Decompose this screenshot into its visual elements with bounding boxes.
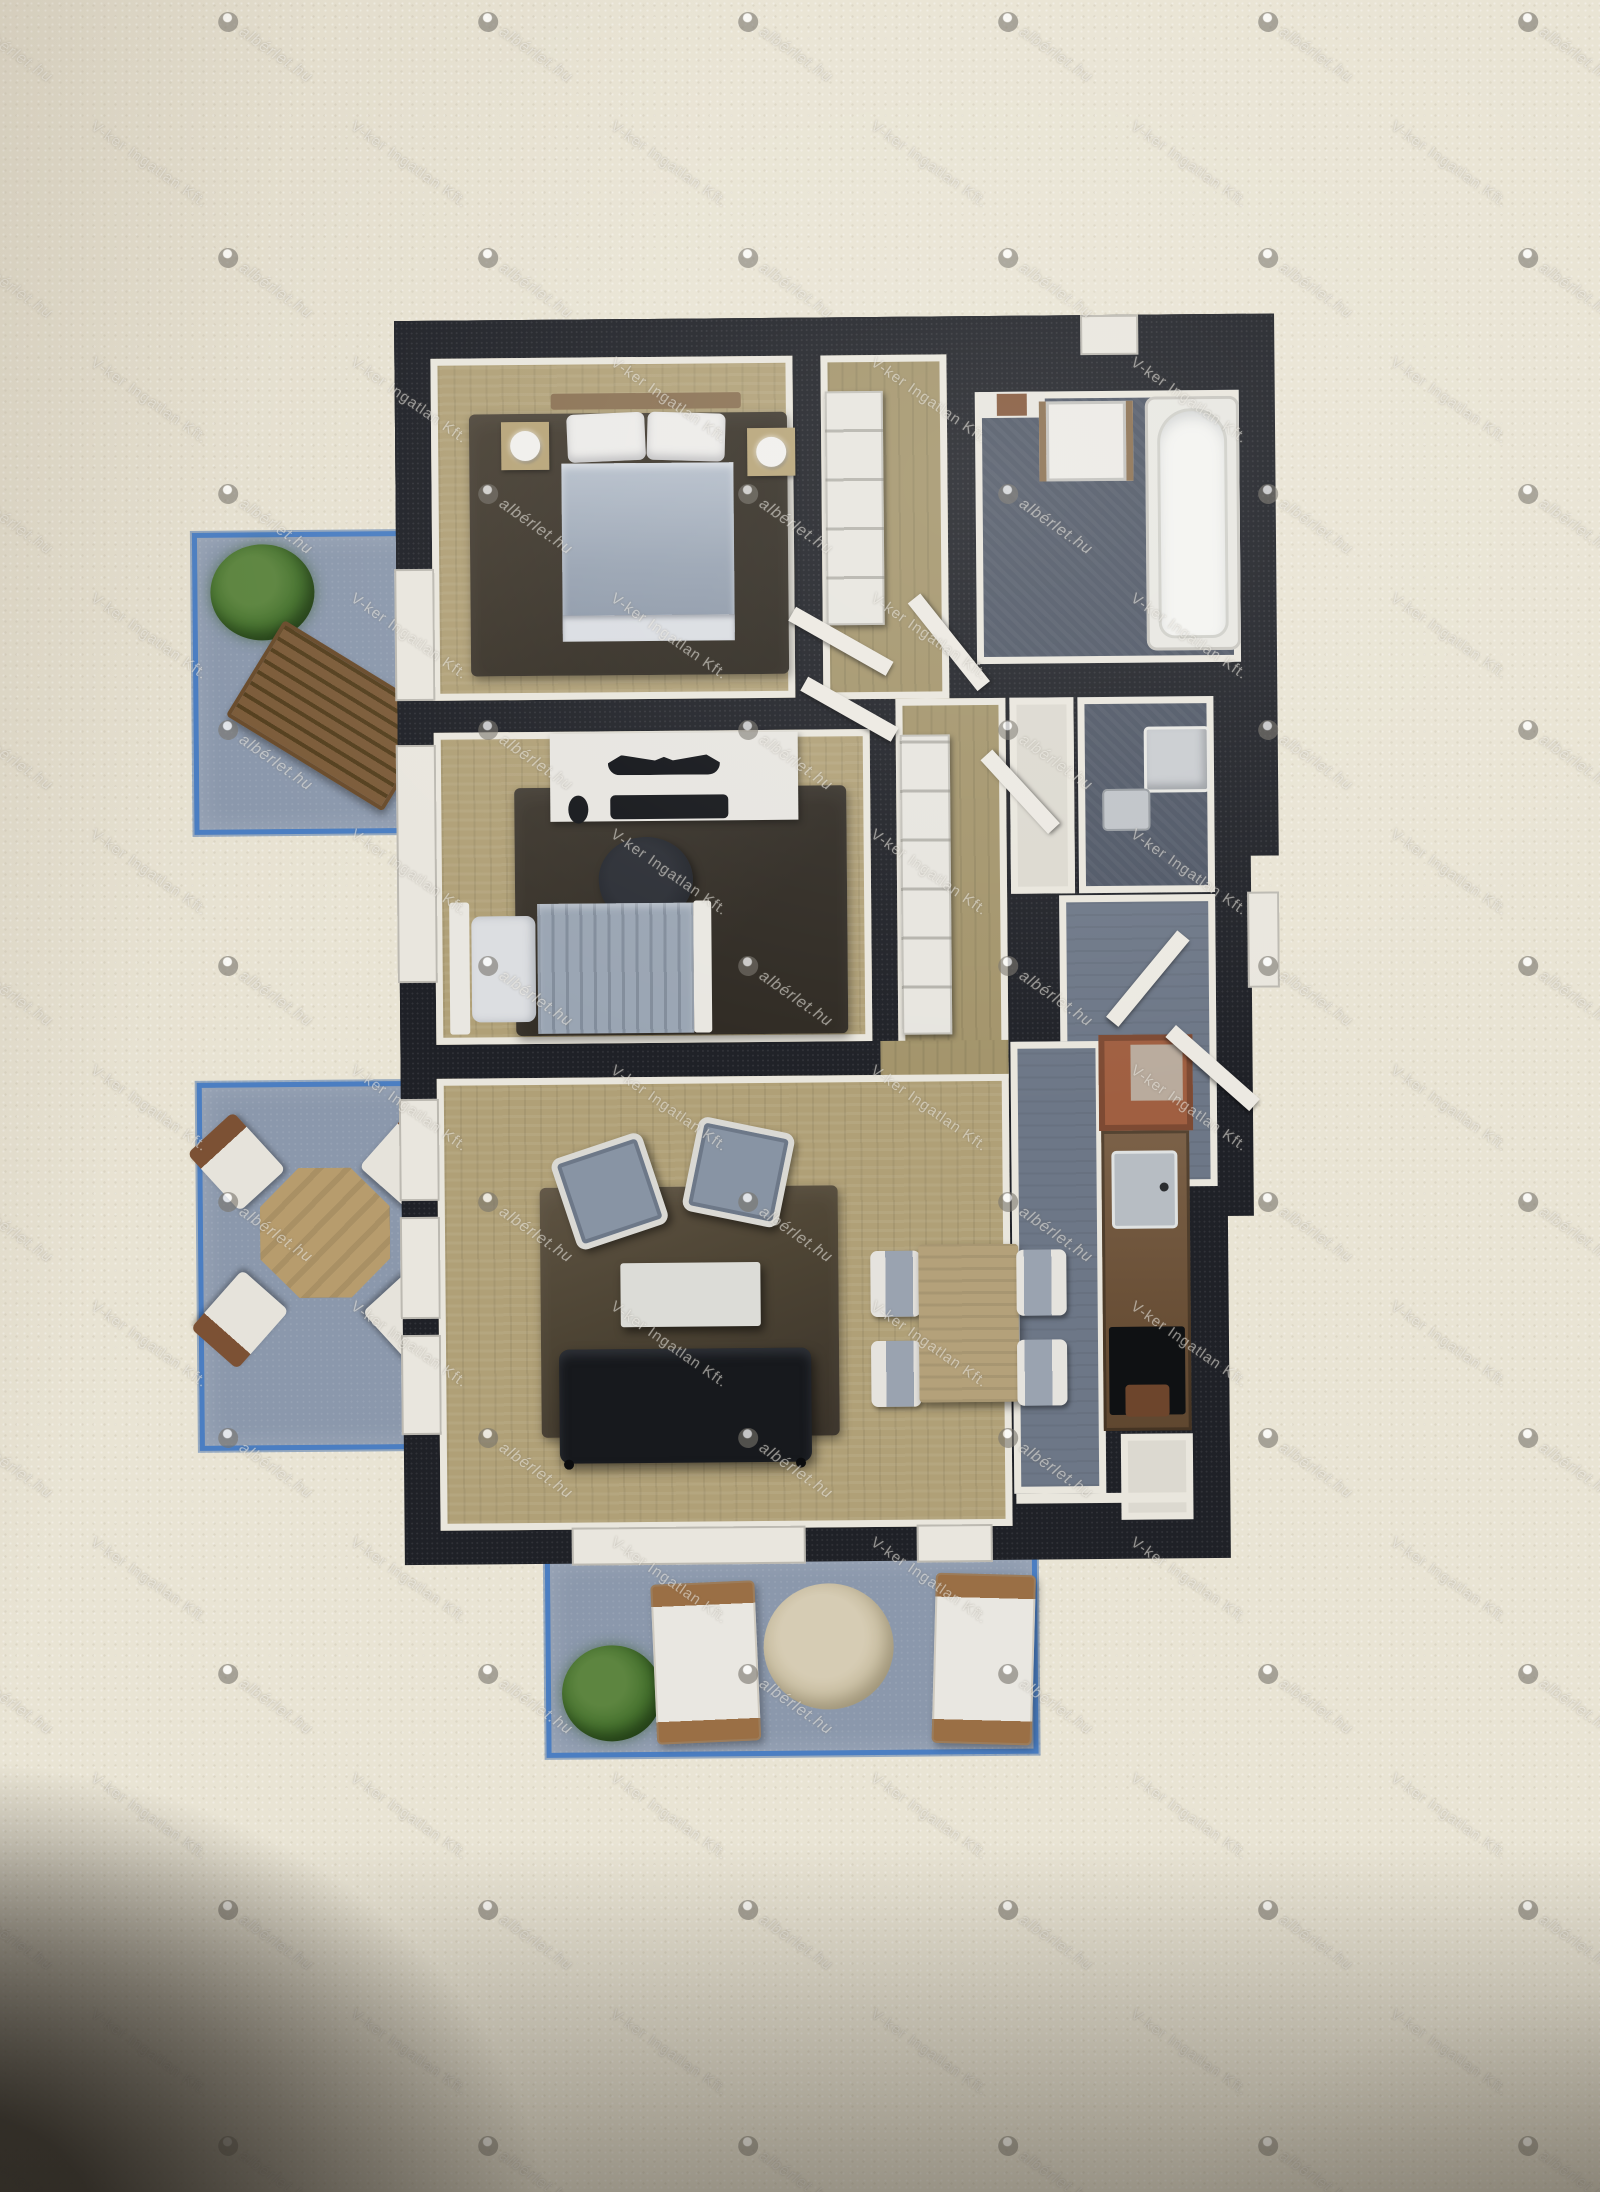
keyboard xyxy=(610,794,728,819)
dining-chair xyxy=(870,1251,921,1317)
bathroom-sink xyxy=(1039,401,1134,482)
round-outdoor-rug xyxy=(763,1583,894,1710)
bathroom-window xyxy=(1080,315,1138,356)
lamp-icon xyxy=(756,437,786,467)
faucet-icon xyxy=(1160,1182,1169,1191)
window xyxy=(400,1217,441,1319)
pan-icon xyxy=(1125,1384,1169,1416)
window xyxy=(917,1524,993,1563)
double-bed-fold xyxy=(563,614,735,642)
window xyxy=(394,569,435,701)
sofa xyxy=(559,1348,812,1464)
pillow xyxy=(566,412,646,463)
single-bed-blanket xyxy=(537,903,694,1034)
dining-chair xyxy=(871,1341,922,1407)
dining-chair xyxy=(1016,1249,1067,1315)
double-bed-blanket xyxy=(561,462,734,633)
wall-lining xyxy=(1016,1492,1192,1504)
window xyxy=(396,745,438,983)
pillow xyxy=(646,412,725,462)
wardrobe xyxy=(900,734,953,1034)
bathroom-cabinet xyxy=(997,394,1027,416)
mouse xyxy=(568,795,588,823)
sun-lounger xyxy=(932,1573,1036,1746)
armchair xyxy=(681,1115,796,1229)
toilet xyxy=(1102,789,1150,831)
terrace-door-window xyxy=(572,1526,806,1566)
single-bed-headboard xyxy=(449,903,470,1035)
kitchen-sink xyxy=(1111,1150,1178,1229)
entry-door-opening xyxy=(1247,891,1280,987)
floor-plan xyxy=(0,0,1600,2192)
washing-machine xyxy=(1144,726,1211,793)
coffee-table xyxy=(620,1262,761,1327)
wardrobe xyxy=(825,391,885,625)
sun-lounger xyxy=(650,1580,761,1744)
kitchen-cabinet-top xyxy=(1130,1044,1182,1100)
sofa-foot xyxy=(564,1460,574,1470)
single-bed-footboard xyxy=(693,900,712,1032)
dining-table xyxy=(918,1244,1019,1403)
bathtub-basin xyxy=(1157,408,1229,639)
plant-icon xyxy=(210,544,315,641)
window xyxy=(401,1335,442,1435)
window xyxy=(399,1099,440,1201)
plant-icon xyxy=(562,1645,663,1742)
dining-chair xyxy=(1017,1339,1068,1405)
lamp-icon xyxy=(510,431,540,461)
double-bed-headboard xyxy=(551,392,741,410)
desk-accessory xyxy=(608,754,720,775)
pillow xyxy=(471,916,536,1023)
sofa-foot xyxy=(796,1458,806,1468)
